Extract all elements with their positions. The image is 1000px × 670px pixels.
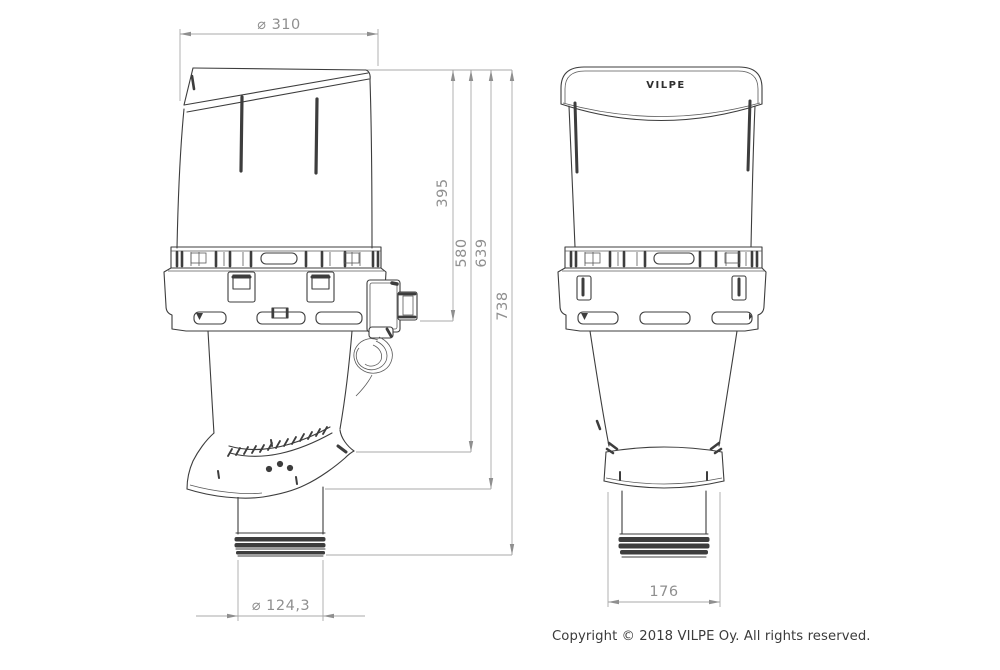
dimension-label-395: 395: [435, 178, 451, 207]
vent-dimension-drawing: ⌀ 310 395 580 639 738 ⌀ 124,3: [0, 0, 1000, 670]
front-cable-coil: [354, 337, 392, 396]
dimension-label-176: 176: [649, 584, 678, 600]
flashing-dot: [287, 465, 293, 471]
front-junction-box: [367, 280, 417, 338]
dimension-label-738: 738: [495, 291, 511, 320]
front-pipe: [235, 487, 326, 556]
copyright-text: Copyright © 2018 VILPE Oy. All rights re…: [552, 629, 872, 644]
flashing-dot: [277, 461, 283, 467]
technical-drawing-page: ⌀ 310 395 580 639 738 ⌀ 124,3: [0, 0, 1000, 670]
front-roof-flashing: [187, 427, 354, 498]
dimension-label-639: 639: [474, 238, 490, 267]
side-neck: [590, 331, 737, 449]
front-view: [164, 68, 417, 556]
side-vent-grille: [565, 247, 762, 268]
side-collar: [604, 447, 724, 488]
dimension-base-width: 176: [608, 492, 720, 607]
side-fan-housing: [558, 268, 766, 331]
dimension-label-cap-diameter: ⌀ 310: [257, 17, 301, 33]
dimension-pipe-diameter: ⌀ 124,3: [196, 560, 365, 621]
flashing-dot: [266, 466, 272, 472]
front-cap: [177, 68, 372, 248]
side-cap: VILPE: [561, 67, 762, 247]
vilpe-logo: VILPE: [646, 80, 686, 91]
dimension-label-580: 580: [454, 238, 470, 267]
side-pipe: [619, 491, 710, 557]
front-fan-housing: [164, 268, 386, 331]
front-vent-grille: [171, 247, 381, 268]
side-view: VILPE: [558, 67, 766, 557]
dimension-label-pipe-diameter: ⌀ 124,3: [252, 598, 310, 614]
front-neck: [208, 331, 352, 434]
